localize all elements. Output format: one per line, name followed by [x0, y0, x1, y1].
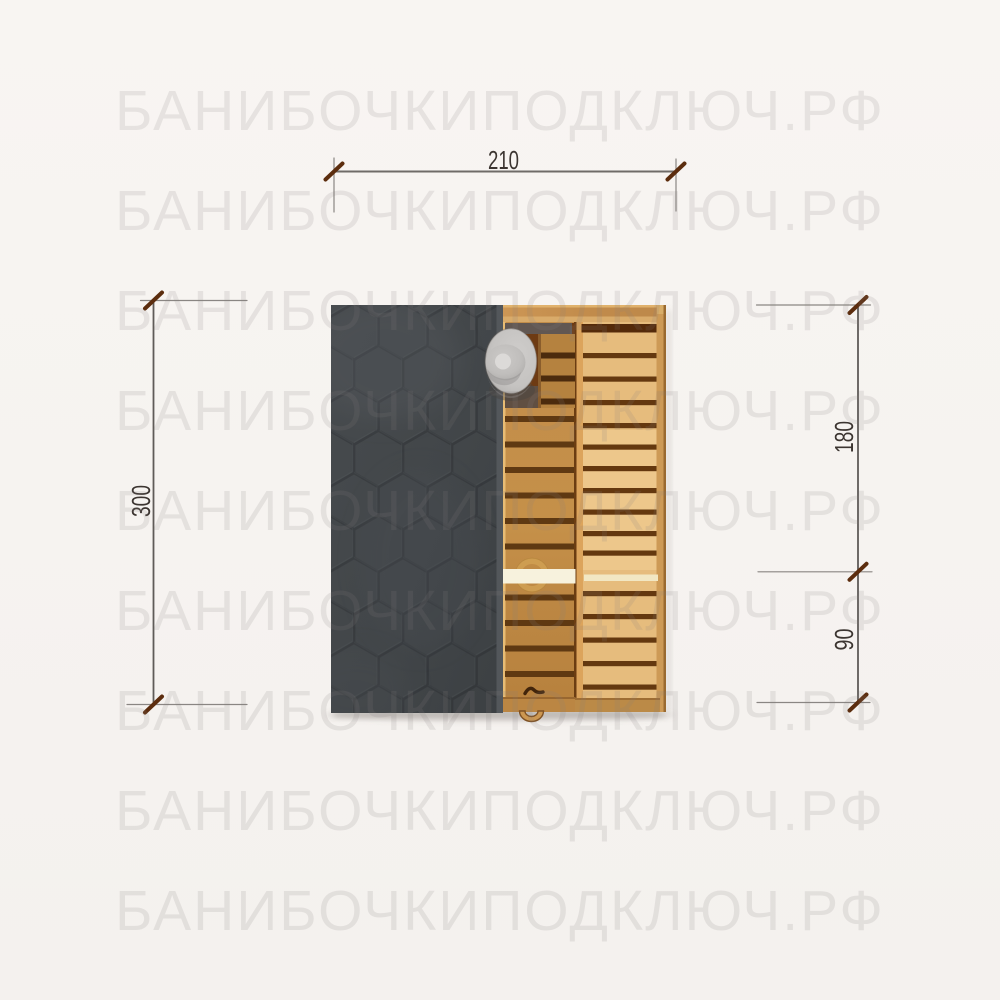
svg-text:БАНИБОЧКИПОДКЛЮЧ.РФ: БАНИБОЧКИПОДКЛЮЧ.РФ — [115, 879, 885, 943]
svg-text:БАНИБОЧКИПОДКЛЮЧ.РФ: БАНИБОЧКИПОДКЛЮЧ.РФ — [115, 79, 885, 143]
svg-text:210: 210 — [488, 145, 519, 175]
svg-text:БАНИБОЧКИПОДКЛЮЧ.РФ: БАНИБОЧКИПОДКЛЮЧ.РФ — [115, 679, 885, 743]
svg-text:БАНИБОЧКИПОДКЛЮЧ.РФ: БАНИБОЧКИПОДКЛЮЧ.РФ — [115, 479, 885, 543]
svg-text:БАНИБОЧКИПОДКЛЮЧ.РФ: БАНИБОЧКИПОДКЛЮЧ.РФ — [115, 279, 885, 343]
svg-text:БАНИБОЧКИПОДКЛЮЧ.РФ: БАНИБОЧКИПОДКЛЮЧ.РФ — [115, 179, 885, 243]
svg-text:БАНИБОЧКИПОДКЛЮЧ.РФ: БАНИБОЧКИПОДКЛЮЧ.РФ — [115, 779, 885, 843]
svg-text:БАНИБОЧКИПОДКЛЮЧ.РФ: БАНИБОЧКИПОДКЛЮЧ.РФ — [115, 579, 885, 643]
svg-text:БАНИБОЧКИПОДКЛЮЧ.РФ: БАНИБОЧКИПОДКЛЮЧ.РФ — [115, 379, 885, 443]
